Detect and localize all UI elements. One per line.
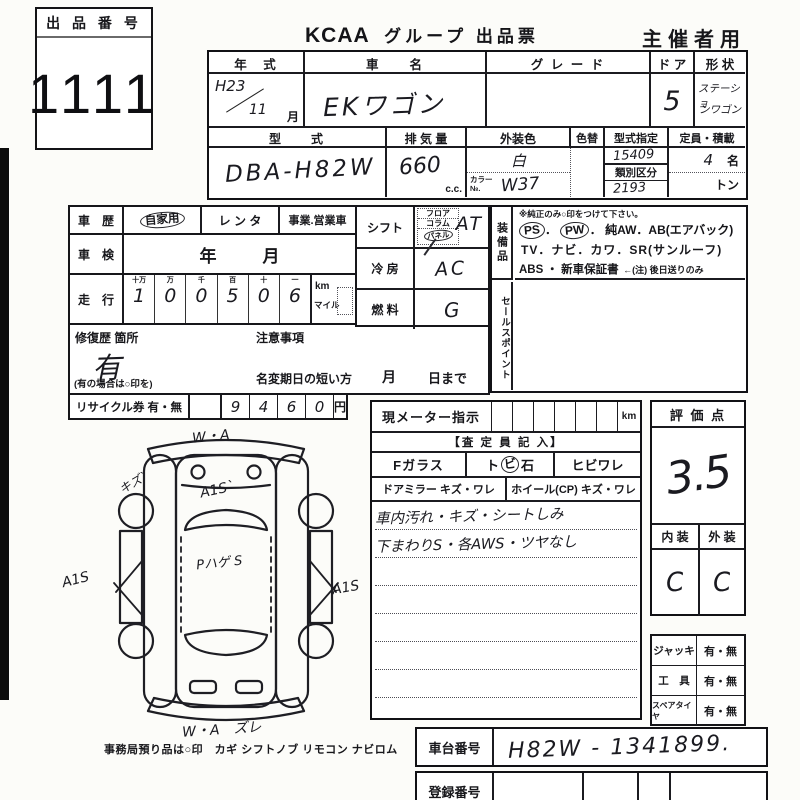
equipment-pw: PW — [560, 221, 591, 240]
equipment-line3: ABS ・ 新車保証書 — [519, 264, 619, 276]
transfer-day-label: 日まで — [428, 368, 467, 387]
windshield — [185, 510, 267, 530]
aircon-value: AC — [435, 257, 468, 281]
model-header: 型 式 — [209, 128, 387, 148]
door-header: ド ア — [651, 52, 695, 74]
registration-cell — [671, 773, 766, 800]
registration-cell — [494, 773, 584, 800]
exterior-color-header: 外装色 — [467, 128, 571, 148]
tools-value: 有・無 — [697, 666, 744, 695]
exterior-header: 外 装 — [700, 525, 744, 548]
transfer-deadline-label: 名変期日の短い方 — [256, 370, 352, 387]
mileage-label: 走 行 — [70, 275, 124, 323]
digit-header: 千 — [186, 275, 216, 285]
mileage-unit-mile: マイル — [314, 299, 340, 311]
assessor-note-line — [375, 698, 637, 726]
digit-header: 百 — [218, 275, 248, 285]
taillight-left — [190, 681, 216, 693]
equipment-note: ※純正のみ○印をつけて下さい。 — [519, 208, 745, 220]
recycle-digit: 4 — [259, 398, 269, 416]
recycle-unit: 円 — [334, 395, 346, 418]
interior-grade: C — [664, 567, 685, 599]
digit-header: 十 — [249, 275, 279, 285]
shape-line2: ンワゴン — [699, 102, 741, 117]
mileage-unit-cell: km マイル — [312, 275, 355, 323]
mileage-digits: 十万 1 万 0 千 0 百 5 十 0 一 6 — [124, 275, 312, 323]
load-unit: トン — [715, 176, 739, 193]
digit-value: 0 — [249, 285, 279, 307]
recycle-digit: 0 — [315, 398, 325, 416]
office-deposit-note: 事務局預り品は○印 カギ シフトノブ リモコン ナビロム — [104, 741, 398, 757]
displacement-value: 660 c.c. — [387, 148, 467, 197]
door-mirror-label: ドアミラー キズ・ワレ — [372, 478, 507, 500]
shaken-month-label: 月 — [263, 242, 280, 267]
history-option-private-text: 自家用 — [139, 210, 185, 230]
model-value-text: DBA-H82W — [224, 154, 376, 188]
class-header: 類別区分 — [605, 165, 667, 181]
form-title-text: グループ 出品票 — [384, 27, 539, 46]
name-value: EKワゴン — [305, 74, 487, 128]
equipment-sep: ． — [545, 223, 557, 237]
color-no-value: W37 — [500, 173, 540, 196]
shift-option-panel: パネル — [418, 230, 458, 241]
equipment-block: 装備品 セールスポイント ※純正のみ○印をつけて下さい。 PS． PW． 純AW… — [490, 205, 748, 393]
digit-value: 6 — [280, 285, 310, 307]
history-option-private: 自家用 — [124, 207, 202, 233]
meter-digit-boxes: km — [491, 402, 640, 431]
equipment-label: 装備品 — [492, 207, 513, 280]
shaken-year-label: 年 — [200, 242, 217, 267]
recolor-value — [571, 148, 605, 197]
sales-point-content — [515, 282, 745, 390]
lot-number-box: 出 品 番 号 1111 — [35, 7, 153, 150]
recycle-digit: 9 — [231, 398, 241, 416]
door-value: 5 — [651, 74, 695, 128]
transfer-month-label: 月 — [382, 367, 396, 387]
shift-value: AT — [456, 213, 483, 235]
assessor-box: 現メーター指示 km 【査 定 員 記 入】 Fガラス ト ビ 石 ヒビワレ ド… — [370, 400, 642, 720]
year-header: 年 式 — [209, 52, 305, 74]
shift-option-floor: フロア — [418, 209, 458, 219]
score-value-area: 3.5 — [652, 428, 744, 523]
organizer-label: 主催者用 — [642, 23, 746, 52]
registration-cell — [584, 773, 639, 800]
displacement-value-text: 660 — [398, 153, 442, 181]
assessor-note-line — [375, 614, 637, 642]
class-value: 2193 — [613, 180, 647, 197]
shift-value-cell: フロア コラム パネル AT — [415, 207, 488, 247]
color-no-label: カラー №. — [470, 176, 493, 193]
accessory-row: ジャッキ 有・無 — [652, 636, 744, 666]
chassis-number-value: H82W - 1341899. — [508, 731, 732, 764]
headlight-left — [192, 466, 205, 479]
capacity-block: 4 名 トン — [669, 148, 745, 197]
equipment-content: ※純正のみ○印をつけて下さい。 PS． PW． 純AW．AB(エアバック) TV… — [515, 207, 745, 280]
spare-tire-value: 有・無 — [697, 696, 744, 725]
assessor-note-line — [375, 558, 637, 586]
assessor-note-text: 車内汚れ・キズ・シートしみ — [375, 503, 564, 529]
model-value: DBA-H82W — [209, 148, 387, 197]
jack-label: ジャッキ — [652, 636, 697, 665]
registration-number-row: 登録番号 — [415, 771, 768, 800]
digit-header: 万 — [155, 275, 185, 285]
taillight-right — [236, 681, 262, 693]
shift-option-panel-text: パネル — [423, 229, 452, 243]
right-front-wheel — [299, 494, 333, 528]
headlight-right — [248, 466, 261, 479]
history-option-business: 事業.営業車 — [280, 207, 355, 233]
fuel-label: 燃 料 — [357, 290, 415, 329]
lot-number-label: 出 品 番 号 — [37, 9, 151, 38]
name-header: 車 名 — [305, 52, 487, 74]
color-no-label-2: №. — [470, 185, 493, 193]
shaken-label: 車 検 — [70, 235, 124, 273]
grade-value — [487, 74, 651, 128]
recycle-digit: 6 — [287, 398, 297, 416]
left-arrow — [114, 561, 142, 615]
digit-value: 0 — [186, 285, 216, 307]
meter-label: 現メーター指示 — [372, 407, 491, 426]
diagram-annotation-bottom: W・A ズレ — [181, 716, 262, 741]
assessor-note-line — [375, 586, 637, 614]
fuel-value: G — [443, 297, 460, 322]
shift-option-column: コラム — [418, 219, 458, 229]
right-rear-wheel — [299, 624, 333, 658]
stone-chip-label: ト ビ 石 — [467, 453, 555, 476]
history-label: 車 歴 — [70, 207, 124, 233]
mileage-unit-km: km — [315, 281, 329, 292]
history-row: 車 歴 自家用 レ ン タ 事業.営業車 — [68, 205, 357, 235]
grade-header: グ レ ー ド — [487, 52, 651, 74]
equipment-line3-note: ←(注) 後日送りのみ — [623, 265, 704, 275]
shaken-row: 車 検 年 月 — [68, 233, 357, 275]
name-value-text: EKワゴン — [322, 84, 445, 124]
type-designation-value: 15409 — [613, 147, 655, 164]
vehicle-table: 年 式 車 名 グ レ ー ド ド ア 形 状 H23 11 月 EKワゴン 5… — [207, 50, 748, 200]
crack-label: ヒビワレ — [555, 453, 640, 476]
door-value-text: 5 — [663, 86, 680, 117]
diagram-annotation-top: W・A — [191, 424, 230, 448]
accessory-row: 工 具 有・無 — [652, 666, 744, 696]
caution-label: 注意事項 — [256, 329, 304, 346]
shape-value: ステーショ ンワゴン — [695, 74, 745, 128]
stone-chip-pre: ト — [486, 455, 499, 474]
spare-tire-label: スペアタイヤ — [652, 696, 697, 725]
left-front-wheel — [119, 494, 153, 528]
assessor-note-line: 下まわりS・各AWS・ツヤなし — [375, 530, 637, 558]
digit-header: 一 — [280, 275, 310, 285]
equipment-line1-rest: 純AW．AB(エアバック) — [605, 223, 733, 237]
chassis-number-label: 車台番号 — [417, 729, 494, 765]
left-door-panel — [120, 531, 142, 623]
capacity-header: 定員・積載 — [669, 128, 745, 148]
shift-label: シフト — [357, 207, 415, 247]
lot-number-value: 1111 — [37, 38, 151, 148]
right-door-panel — [310, 531, 332, 623]
scan-artifact-bar — [0, 148, 9, 700]
interior-header: 内 装 — [652, 525, 700, 548]
type-designation-block: 15409 類別区分 2193 — [605, 148, 669, 197]
exterior-color-value: 白 カラー №. W37 — [467, 148, 571, 197]
assessor-note-text: 下まわりS・各AWS・ツヤなし — [375, 530, 577, 556]
car-damage-diagram — [80, 425, 370, 735]
tools-label: 工 具 — [652, 666, 697, 695]
equipment-line2: TV．ナビ．カワ．SR(サンルーフ) — [521, 241, 745, 258]
auction-sheet: 出 品 番 号 1111 KCAA グループ 出品票 主催者用 年 式 車 名 … — [0, 0, 800, 800]
stone-chip-post: 石 — [521, 455, 534, 474]
score-value: 3.5 — [663, 446, 733, 505]
assessor-note-line — [375, 670, 637, 698]
digit-value: 1 — [124, 285, 154, 307]
chassis-number-row: 車台番号 H82W - 1341899. — [415, 727, 768, 767]
meter-unit: km — [617, 402, 640, 431]
mileage-row: 走 行 十万 1 万 0 千 0 百 5 十 0 一 — [68, 273, 357, 325]
assessor-note-line — [375, 642, 637, 670]
mileage-mile-box — [337, 287, 353, 315]
aircon-label: 冷 房 — [357, 249, 415, 288]
recycle-label: リサイクル券 有・無 — [70, 395, 190, 418]
recycle-blank-cell — [190, 395, 222, 418]
digit-value: 5 — [218, 285, 248, 307]
accessory-row: スペアタイヤ 有・無 — [652, 696, 744, 725]
rear-window — [185, 630, 267, 655]
type-designation-header: 型式指定 — [605, 128, 669, 148]
brand-logo: KCAA — [305, 24, 370, 47]
year-value: H23 11 月 — [209, 74, 305, 128]
recycle-row: リサイクル券 有・無 9 4 6 0 円 — [68, 393, 348, 420]
history-option-rental: レ ン タ — [202, 207, 280, 233]
assessor-notes: 車内汚れ・キズ・シートしみ 下まわりS・各AWS・ツヤなし — [372, 502, 640, 726]
displacement-header: 排 気 量 — [387, 128, 467, 148]
sales-point-label: セールスポイント — [492, 282, 513, 390]
stone-chip-circled: ビ — [500, 455, 519, 474]
equipment-sep: ． — [590, 223, 602, 237]
left-side-panel — [144, 455, 176, 707]
capacity-value: 4 — [703, 151, 713, 169]
shift-options-box: フロア コラム パネル — [417, 208, 459, 245]
digit-header: 十万 — [124, 275, 154, 285]
score-box: 評 価 点 3.5 内 装 外 装 C C — [650, 400, 746, 616]
score-header: 評 価 点 — [652, 402, 744, 428]
accessories-box: ジャッキ 有・無 工 具 有・無 スペアタイヤ 有・無 — [650, 634, 746, 726]
equipment-ps: PS — [518, 221, 545, 240]
assessor-header: 【査 定 員 記 入】 — [372, 433, 640, 453]
digit-value: 0 — [155, 285, 185, 307]
capacity-unit: 名 — [727, 152, 739, 169]
meter-row: 現メーター指示 km — [372, 402, 640, 433]
form-title: KCAA グループ 出品票 — [305, 22, 539, 48]
assessor-note-line: 車内汚れ・キズ・シートしみ — [375, 502, 637, 530]
repair-note: (有の場合は○印を) — [74, 376, 153, 390]
front-glass-label: Fガラス — [372, 453, 467, 476]
repair-label: 修復歴 箇所 — [75, 329, 138, 346]
shift-table: シフト フロア コラム パネル AT 冷 房 AC 燃 料 G — [355, 205, 490, 327]
shape-header: 形 状 — [695, 52, 745, 74]
registration-cell — [639, 773, 671, 800]
jack-value: 有・無 — [697, 636, 744, 665]
year-month: 11 — [249, 102, 267, 118]
exterior-grade: C — [711, 567, 732, 599]
exterior-color-text: 白 — [511, 150, 526, 171]
caution-cell: 注意事項 名変期日の短い方 月 日まで — [250, 323, 490, 395]
right-side-panel — [276, 455, 308, 707]
displacement-unit: c.c. — [445, 184, 462, 195]
repair-cell: 修復歴 箇所 有 (有の場合は○印を) — [68, 323, 252, 395]
registration-number-label: 登録番号 — [417, 773, 494, 800]
recolor-header: 色替 — [571, 128, 605, 148]
year-era: H23 — [215, 77, 245, 95]
month-suffix: 月 — [287, 108, 299, 125]
wheel-damage-label: ホイール(CP) キズ・ワレ — [507, 478, 640, 500]
left-rear-wheel — [119, 624, 153, 658]
